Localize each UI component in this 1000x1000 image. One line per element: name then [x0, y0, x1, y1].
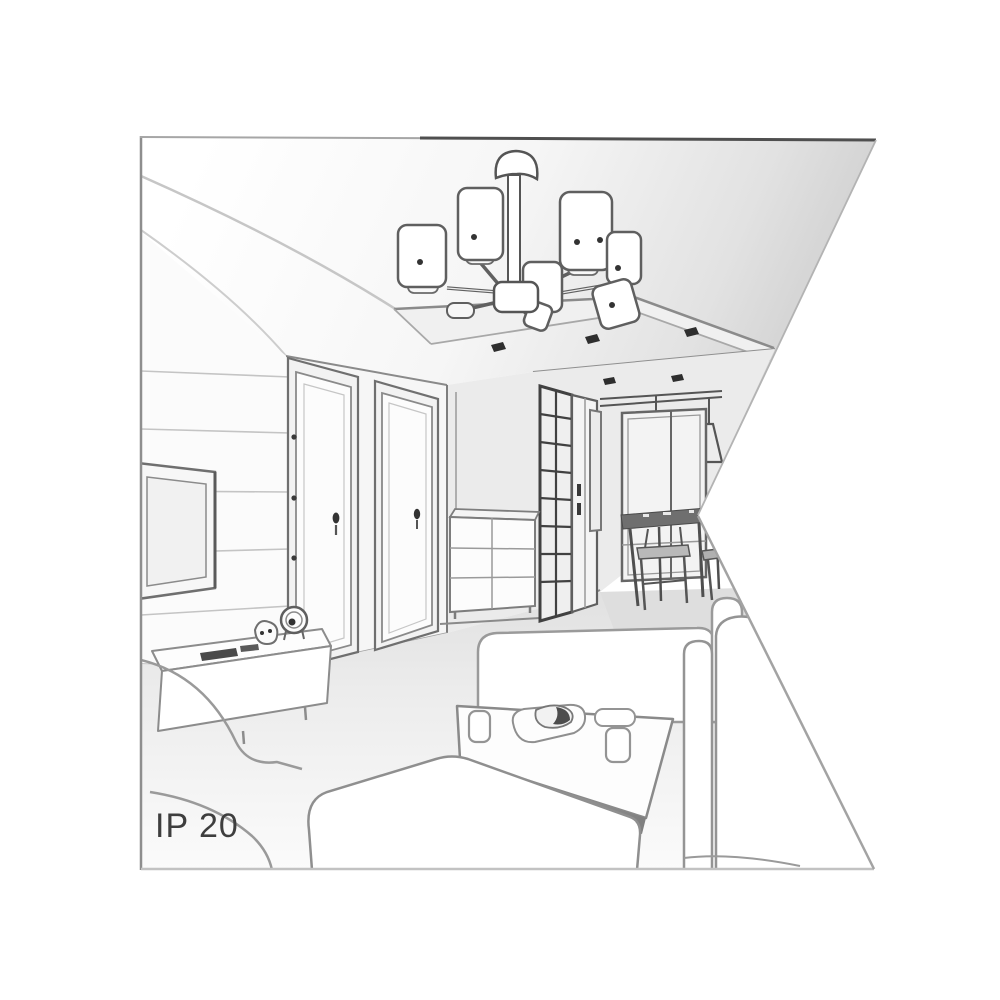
cup	[469, 711, 490, 742]
socket-dot	[417, 259, 423, 265]
right-sofa-armrest	[684, 641, 712, 870]
interior-sketch: IP 20	[0, 0, 1000, 1000]
chandelier-hub	[494, 282, 538, 312]
clock-center-dot	[289, 619, 296, 626]
chair-seat	[637, 545, 690, 559]
hinge-dot	[291, 495, 296, 500]
grid-line	[540, 526, 572, 527]
door-right	[375, 381, 438, 650]
socket-dot	[574, 239, 580, 245]
speck	[643, 514, 649, 517]
socket-dot	[597, 237, 603, 243]
wall-tv	[138, 463, 215, 599]
cylinder-shade	[398, 225, 446, 287]
cylinder-shade	[560, 192, 612, 270]
door-handle	[333, 513, 340, 524]
socket-dot	[615, 265, 621, 271]
tv-screen	[147, 477, 206, 586]
door-handle	[414, 509, 420, 519]
figurine	[255, 621, 277, 644]
ip-rating-label: IP 20	[155, 807, 239, 845]
chest-drawer-line	[450, 577, 535, 578]
wardrobe-handle	[577, 484, 581, 496]
ceiling-top-dark-edge	[420, 138, 876, 140]
scene	[138, 136, 880, 870]
nook-window-strip	[590, 410, 601, 531]
cylinder-shade	[458, 188, 503, 260]
cup	[606, 728, 630, 762]
chest-of-drawers	[450, 509, 539, 619]
figurine-body	[255, 621, 277, 644]
tray	[595, 709, 635, 726]
speck	[689, 510, 694, 513]
hinge-dot	[291, 555, 296, 560]
speck	[663, 512, 671, 515]
sideboard-leg	[305, 707, 306, 720]
figurine-eye	[260, 631, 264, 635]
cylinder-shade	[607, 232, 641, 284]
hinge-dot	[291, 434, 296, 439]
sideboard-leg	[243, 731, 244, 744]
figurine-eye	[268, 629, 272, 633]
far-sofa-backrest	[478, 628, 714, 722]
wardrobe-handle	[577, 503, 581, 515]
chandelier-stem	[508, 175, 520, 290]
chest-drawer-line	[450, 548, 535, 549]
socket-dot	[609, 302, 615, 308]
shade-ring	[447, 303, 474, 318]
product-ambience-image: IP 20	[0, 0, 1000, 1000]
wardrobe	[540, 386, 597, 621]
grid-line	[540, 581, 572, 582]
socket-dot	[471, 234, 477, 240]
